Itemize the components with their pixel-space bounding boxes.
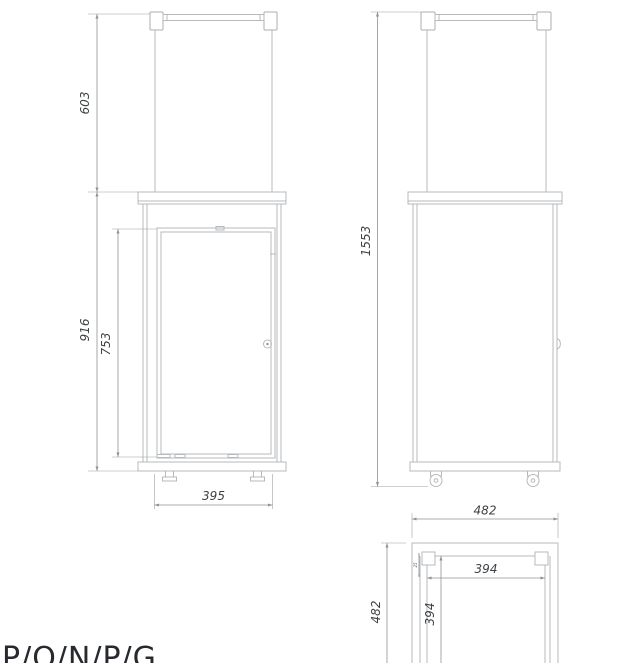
door-knob-center — [266, 343, 269, 346]
dim-label-394-h: 394 — [475, 562, 498, 576]
model-variants-label: P/O/N/P/G — [2, 641, 157, 663]
front-foot-left-stem — [166, 471, 174, 477]
side-lid — [408, 192, 562, 204]
front-body — [143, 204, 281, 462]
front-foot-right-stem — [254, 471, 262, 477]
dim-label-603: 603 — [78, 92, 92, 115]
front-plinth — [138, 462, 286, 471]
plan-post-left — [422, 552, 435, 565]
plan-post-right — [535, 552, 548, 565]
front-lid — [138, 192, 286, 204]
side-bar-cap-left — [421, 12, 435, 30]
dim-label-post: 25 — [413, 562, 418, 568]
front-foot-left-base — [163, 477, 177, 481]
side-body — [413, 204, 557, 462]
side-plinth — [410, 462, 560, 471]
side-top-bar — [435, 15, 537, 21]
side-bar-cap-right — [537, 12, 551, 30]
dim-label-394-v: 394 — [423, 603, 437, 626]
drawing-canvas: 603 916 753 395 — [0, 0, 624, 663]
front-top-bar — [163, 15, 264, 21]
front-bar-cap-right — [264, 12, 277, 30]
technical-drawing-page: 603 916 753 395 — [0, 0, 624, 663]
dim-label-482-left: 482 — [369, 601, 383, 624]
dim-label-395: 395 — [202, 489, 225, 503]
dim-label-916: 916 — [78, 318, 92, 341]
caster-right-wheel-icon — [527, 475, 539, 487]
dim-label-482-top: 482 — [474, 504, 497, 518]
caster-left-wheel-icon — [430, 475, 442, 487]
front-foot-right-base — [251, 477, 265, 481]
dim-label-753: 753 — [99, 333, 113, 356]
dim-label-1553: 1553 — [359, 226, 373, 257]
front-bar-cap-left — [150, 12, 163, 30]
